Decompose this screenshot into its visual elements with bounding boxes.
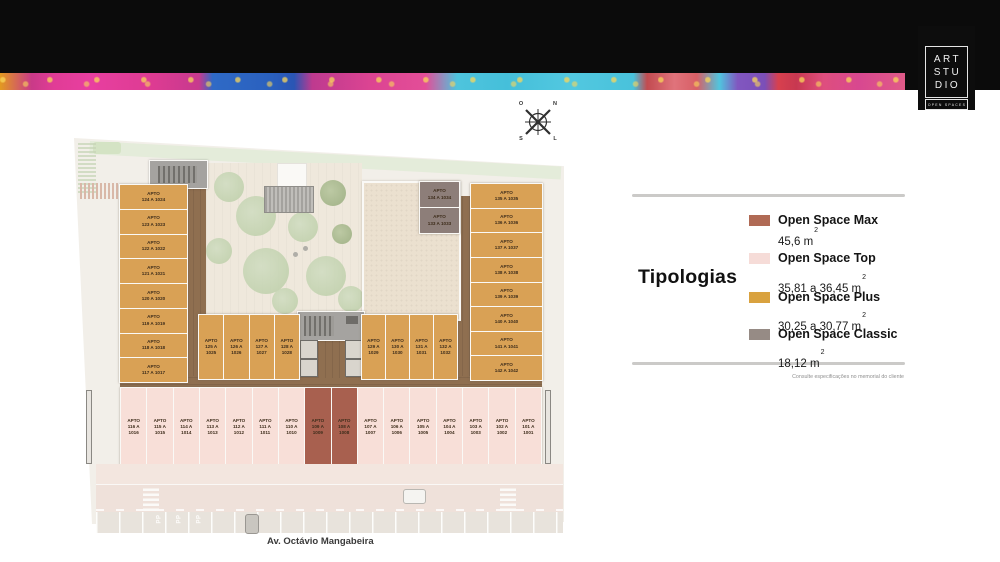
apartment-unit: APTO113 A1013 xyxy=(200,388,225,466)
elevator xyxy=(345,340,362,359)
elevator xyxy=(300,340,318,359)
apartment-unit-label: 1004 xyxy=(444,430,454,436)
apartment-unit: APTO115 A1015 xyxy=(147,388,172,466)
legend-swatch xyxy=(749,253,770,264)
apartment-unit-label: 1030 xyxy=(392,350,402,356)
apartment-unit-label: 1013 xyxy=(207,430,217,436)
tree-icon xyxy=(206,238,232,264)
apartment-unit-label: 1006 xyxy=(392,430,402,436)
apartment-unit: APTO126 A1026 xyxy=(224,315,248,379)
tree-icon xyxy=(332,224,352,244)
apartment-unit-label: 1028 xyxy=(282,350,292,356)
hedge xyxy=(93,142,121,154)
apartment-unit: APTO137 A 1037 xyxy=(471,233,542,257)
apartment-unit: APTO130 A1030 xyxy=(386,315,409,379)
apartment-unit: APTO136 A 1036 xyxy=(471,209,542,233)
apartment-unit: APTO132 A1032 xyxy=(434,315,457,379)
apartment-unit-label: 121 A 1021 xyxy=(142,271,165,277)
apartment-unit: APTO131 A1031 xyxy=(410,315,433,379)
apartment-unit-label: 1012 xyxy=(234,430,244,436)
apartment-unit: APTO122 A 1022 xyxy=(120,235,187,259)
legend-item-name: Open Space Plus xyxy=(778,290,880,304)
corridor xyxy=(318,336,346,378)
retaining-wall xyxy=(86,390,92,464)
apartment-unit: APTO111 A1011 xyxy=(253,388,278,466)
apartment-unit-label: 118 A 1018 xyxy=(142,345,165,351)
apartment-unit: APTO107 A1007 xyxy=(358,388,383,466)
legend-footnote: Consulte especificações no memorial do c… xyxy=(792,374,904,380)
apartment-unit: APTO127 A1027 xyxy=(250,315,274,379)
apartment-unit: APTO135 A 1035 xyxy=(471,184,542,208)
parking-marking-label: PP xyxy=(197,514,203,523)
apartment-unit-label: 119 A 1019 xyxy=(142,321,165,327)
apartment-block-classic: APTO134 A 1034APTO133 A 1033 xyxy=(419,181,460,234)
apartment-unit: APTO133 A 1033 xyxy=(420,208,459,233)
elevator xyxy=(345,359,362,377)
legend-item-area: 45,6 m2 xyxy=(778,235,818,248)
apartment-unit-label: 1011 xyxy=(260,430,270,436)
apartment-unit-label: 1005 xyxy=(418,430,428,436)
apartment-unit-label: 1025 xyxy=(206,350,216,356)
apartment-wing-right: APTO135 A 1035APTO136 A 1036APTO137 A 10… xyxy=(470,183,543,381)
legend-title: Tipologias xyxy=(638,266,737,289)
compass-west-label: O xyxy=(517,101,525,107)
stairs-icon xyxy=(304,316,334,336)
apartment-unit-label: 1002 xyxy=(497,430,507,436)
apartment-unit: APTO104 A1004 xyxy=(437,388,462,466)
retaining-wall xyxy=(545,390,551,464)
apartment-unit-label: 139 A 1039 xyxy=(495,294,518,300)
apartment-unit-label: 1014 xyxy=(181,430,191,436)
apartment-unit: APTO138 A 1038 xyxy=(471,258,542,282)
apartment-unit: APTO125 A1025 xyxy=(199,315,223,379)
apartment-unit: APTO112 A1012 xyxy=(226,388,251,466)
apartment-unit-label: 136 A 1036 xyxy=(495,220,518,226)
compass-rose-icon: O N S L xyxy=(516,100,560,144)
legend-item-name: Open Space Top xyxy=(778,251,876,265)
tree-icon xyxy=(288,212,318,242)
apartment-unit: APTO141 A 1041 xyxy=(471,332,542,356)
apartment-unit: APTO116 A1016 xyxy=(121,388,146,466)
apartment-unit-label: 134 A 1034 xyxy=(428,195,451,201)
apartment-unit-label: 120 A 1020 xyxy=(142,296,165,302)
apartment-unit-label: 140 A 1040 xyxy=(495,319,518,325)
legend-item-open-space-max: Open Space Max xyxy=(749,213,878,227)
legend-divider xyxy=(632,362,905,365)
apartment-unit-label: 1015 xyxy=(155,430,165,436)
apartment-unit-label: 1009 xyxy=(313,430,323,436)
apartment-unit: APTO110 A1010 xyxy=(279,388,304,466)
apartment-unit: APTO134 A 1034 xyxy=(420,182,459,207)
stair-core xyxy=(297,311,365,341)
road-marking xyxy=(96,509,563,511)
paver-hatch xyxy=(78,183,120,199)
logo-line: STU xyxy=(934,66,962,79)
apartment-unit-label: 1003 xyxy=(471,430,481,436)
crosswalk xyxy=(143,486,159,511)
apartment-unit: APTO139 A 1039 xyxy=(471,283,542,307)
tree-icon xyxy=(214,172,244,202)
apartment-unit: APTO102 A1002 xyxy=(489,388,514,466)
apartment-wing-left: APTO124 A 1024APTO123 A 1023APTO122 A 10… xyxy=(119,184,188,383)
logo-line: ART xyxy=(934,53,961,66)
apartment-row-middle-left: APTO125 A1025APTO126 A1026APTO127 A1027A… xyxy=(198,314,300,380)
sidewalk xyxy=(96,464,563,484)
apartment-unit: APTO118 A 1018 xyxy=(120,334,187,358)
apartment-unit: APTO119 A 1019 xyxy=(120,309,187,333)
compass-south-label: S xyxy=(517,136,525,142)
parking-strip xyxy=(96,512,563,533)
compass-east-label: L xyxy=(551,136,559,142)
apartment-unit-label: 141 A 1041 xyxy=(495,344,518,350)
pergola-deck xyxy=(264,186,314,213)
apartment-unit-label: 1029 xyxy=(368,350,378,356)
art-studio-logo: ART STU DIO OPEN SPACES xyxy=(918,26,975,110)
playground-item xyxy=(293,252,298,257)
parking-marking-label: PP xyxy=(177,514,183,523)
logo-subtitle: OPEN SPACES xyxy=(925,99,968,110)
service-room xyxy=(346,316,358,324)
apartment-unit: APTO101 A1001 xyxy=(516,388,541,466)
apartment-unit: APTO109 A1009 xyxy=(305,388,330,466)
apartment-unit-label: 117 A 1017 xyxy=(142,370,165,376)
apartment-unit: APTO129 A1029 xyxy=(362,315,385,379)
tree-icon xyxy=(320,180,346,206)
parking-marking-label: PP xyxy=(157,514,163,523)
car-icon xyxy=(245,514,259,534)
apartment-row-middle-right: APTO129 A1029APTO130 A1030APTO131 A1031A… xyxy=(361,314,458,380)
street-label: Av. Octávio Mangabeira xyxy=(267,536,374,547)
legend-item-name: Open Space Classic xyxy=(778,327,898,341)
apartment-unit-label: 1016 xyxy=(129,430,139,436)
apartment-unit-label: 1007 xyxy=(365,430,375,436)
apartment-unit-label: 1010 xyxy=(286,430,296,436)
apartment-unit-label: 123 A 1023 xyxy=(142,222,165,228)
legend-swatch xyxy=(749,292,770,303)
legend-divider xyxy=(632,194,905,197)
apartment-unit-label: 1001 xyxy=(523,430,533,436)
legend-item-open-space-top: Open Space Top xyxy=(749,251,876,265)
tree-icon xyxy=(338,286,364,312)
apartment-unit-label: 1031 xyxy=(416,350,426,356)
apartment-unit: APTO128 A1028 xyxy=(275,315,299,379)
floorplan-page: ART STU DIO OPEN SPACES O N S L xyxy=(0,0,1000,562)
apartment-unit: APTO114 A1014 xyxy=(174,388,199,466)
tree-icon xyxy=(272,288,298,314)
squared-exponent: 2 xyxy=(862,274,866,281)
apartment-unit: APTO124 A 1024 xyxy=(120,185,187,209)
apartment-unit: APTO123 A 1023 xyxy=(120,210,187,234)
apartment-unit-label: 138 A 1038 xyxy=(495,270,518,276)
apartment-unit-label: 1027 xyxy=(257,350,267,356)
compass-north-label: N xyxy=(551,101,559,107)
apartment-unit: APTO105 A1005 xyxy=(410,388,435,466)
top-banner xyxy=(0,0,1000,90)
legend-item-open-space-plus: Open Space Plus xyxy=(749,290,880,304)
squared-exponent: 2 xyxy=(814,227,818,234)
squared-exponent: 2 xyxy=(821,349,825,356)
apartment-unit-label: 137 A 1037 xyxy=(495,245,518,251)
elevator xyxy=(300,359,318,377)
apartment-unit-label: 142 A 1042 xyxy=(495,368,518,374)
paint-art-strip xyxy=(0,73,905,90)
playground-item xyxy=(303,246,308,251)
apartment-unit-label: 133 A 1033 xyxy=(428,221,451,227)
typology-legend: Tipologias Open Space Max45,6 m2Open Spa… xyxy=(630,186,908,391)
apartment-unit: APTO120 A 1020 xyxy=(120,284,187,308)
apartment-unit: APTO121 A 1021 xyxy=(120,259,187,283)
apartment-unit: APTO142 A 1042 xyxy=(471,356,542,380)
apartment-unit-label: 1032 xyxy=(440,350,450,356)
apartment-unit-label: 122 A 1022 xyxy=(142,246,165,252)
stairs-icon xyxy=(158,166,197,183)
apartment-unit: APTO140 A 1040 xyxy=(471,307,542,331)
legend-item-open-space-classic: Open Space Classic xyxy=(749,327,898,341)
legend-swatch xyxy=(749,215,770,226)
legend-swatch xyxy=(749,329,770,340)
legend-item-area: 18,12 m2 xyxy=(778,357,824,370)
apartment-unit-label: 1026 xyxy=(231,350,241,356)
logo-line: DIO xyxy=(935,79,960,92)
apartment-unit: APTO117 A 1017 xyxy=(120,358,187,382)
apartment-unit: APTO106 A1006 xyxy=(384,388,409,466)
squared-exponent: 2 xyxy=(862,312,866,319)
car-icon xyxy=(403,489,426,504)
apartment-unit-label: 135 A 1035 xyxy=(495,196,518,202)
crosswalk xyxy=(500,486,516,511)
apartment-unit-label: 124 A 1024 xyxy=(142,197,165,203)
apartment-unit: APTO103 A1003 xyxy=(463,388,488,466)
logo-frame: ART STU DIO xyxy=(925,46,968,98)
apartment-unit: APTO108 A1008 xyxy=(332,388,357,466)
legend-item-name: Open Space Max xyxy=(778,213,878,227)
apartment-row-front: APTO116 A1016APTO115 A1015APTO114 A1014A… xyxy=(120,387,542,467)
apartment-unit-label: 1008 xyxy=(339,430,349,436)
tree-icon xyxy=(243,248,289,294)
